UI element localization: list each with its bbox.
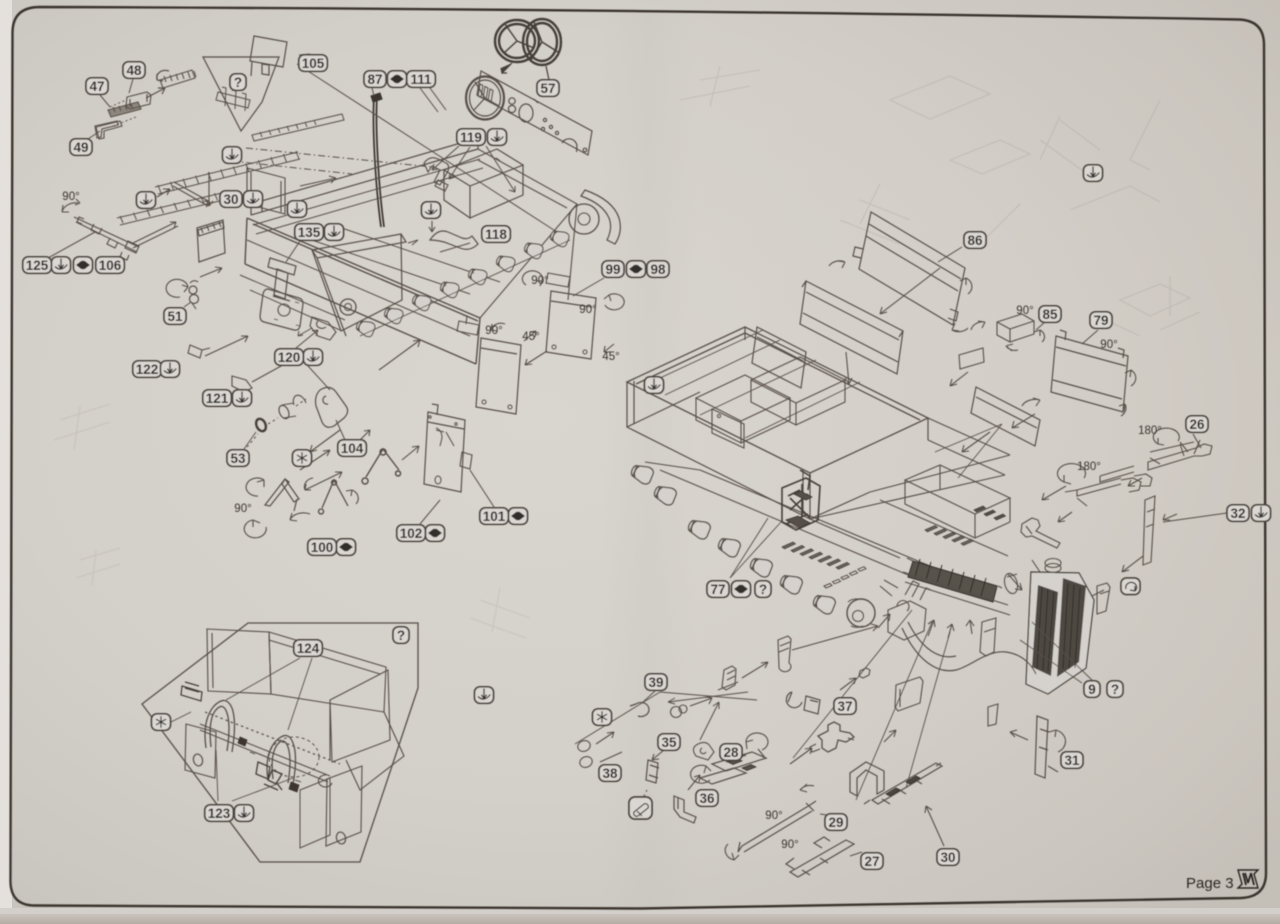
svg-text:90°: 90°	[531, 275, 548, 287]
svg-text:?: ?	[1111, 682, 1119, 697]
svg-text:98: 98	[650, 262, 666, 277]
svg-text:57: 57	[540, 81, 555, 96]
svg-text:105: 105	[302, 56, 325, 71]
svg-text:?: ?	[397, 628, 405, 643]
svg-text:51: 51	[167, 309, 183, 324]
svg-text:90°: 90°	[234, 503, 251, 515]
svg-text:31: 31	[1064, 753, 1080, 768]
svg-text:120: 120	[278, 350, 301, 365]
svg-text:?: ?	[759, 582, 767, 597]
svg-text:90°: 90°	[1100, 339, 1117, 351]
svg-text:79: 79	[1093, 313, 1108, 328]
svg-text:90°: 90°	[485, 325, 502, 337]
svg-text:87: 87	[367, 72, 382, 87]
svg-text:32: 32	[1230, 506, 1245, 521]
svg-text:119: 119	[460, 130, 482, 145]
svg-text:36: 36	[699, 791, 715, 806]
svg-text:?: ?	[234, 75, 242, 90]
svg-text:85: 85	[1042, 307, 1058, 322]
svg-text:48: 48	[126, 63, 142, 78]
svg-text:77: 77	[710, 582, 725, 597]
svg-text:121: 121	[206, 391, 229, 406]
svg-text:38: 38	[602, 766, 618, 781]
svg-text:49: 49	[73, 140, 88, 155]
svg-text:99: 99	[605, 262, 620, 277]
svg-text:30: 30	[223, 192, 238, 207]
svg-text:53: 53	[230, 451, 246, 466]
svg-text:90°: 90°	[62, 191, 79, 203]
svg-text:45°: 45°	[522, 331, 539, 343]
svg-text:27: 27	[864, 854, 879, 869]
svg-text:Page 3: Page 3	[1186, 875, 1234, 892]
svg-text:39: 39	[648, 675, 663, 690]
svg-text:180°: 180°	[1077, 461, 1101, 473]
svg-text:125: 125	[26, 258, 49, 273]
svg-text:124: 124	[297, 641, 320, 656]
svg-text:180°: 180°	[1138, 425, 1162, 437]
svg-text:90°: 90°	[765, 810, 782, 822]
svg-text:90°: 90°	[781, 839, 798, 851]
svg-text:90°: 90°	[1016, 305, 1033, 317]
svg-text:9: 9	[1088, 682, 1096, 697]
svg-text:26: 26	[1189, 417, 1205, 432]
svg-text:118: 118	[485, 227, 507, 242]
svg-text:100: 100	[311, 540, 334, 555]
svg-text:135: 135	[298, 225, 321, 240]
svg-text:90°: 90°	[579, 304, 596, 316]
svg-text:30: 30	[940, 850, 955, 865]
svg-text:28: 28	[723, 745, 739, 760]
svg-text:29: 29	[828, 815, 843, 830]
svg-text:102: 102	[400, 526, 423, 541]
svg-text:101: 101	[483, 509, 506, 524]
svg-text:35: 35	[661, 735, 677, 750]
svg-text:106: 106	[99, 258, 122, 273]
svg-text:123: 123	[208, 806, 231, 821]
svg-text:47: 47	[89, 79, 104, 94]
svg-text:111: 111	[410, 72, 432, 87]
svg-text:86: 86	[967, 233, 983, 248]
svg-text:122: 122	[136, 362, 159, 377]
svg-text:45°: 45°	[602, 351, 619, 363]
svg-text:37: 37	[837, 699, 852, 714]
svg-text:104: 104	[341, 441, 364, 456]
